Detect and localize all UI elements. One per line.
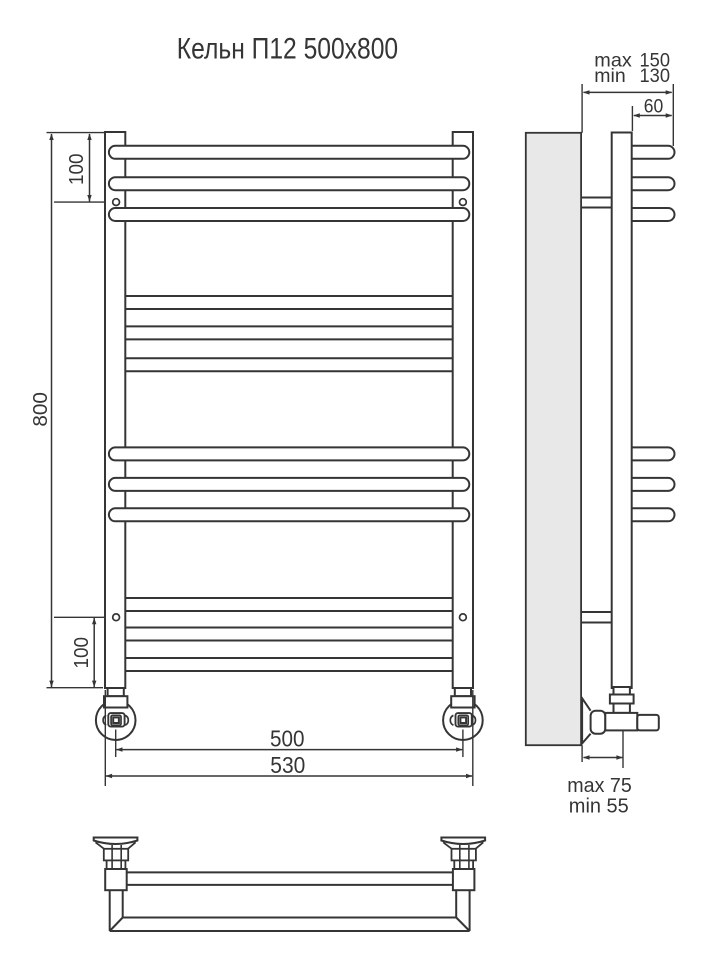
- svg-text:Кельн П12 500х800: Кельн П12 500х800: [177, 33, 398, 66]
- svg-text:100: 100: [65, 154, 88, 186]
- svg-text:min: min: [594, 65, 625, 87]
- svg-text:500: 500: [270, 725, 305, 751]
- svg-text:100: 100: [70, 637, 93, 669]
- svg-text:130: 130: [640, 65, 671, 87]
- svg-text:max 75: max 75: [567, 775, 632, 797]
- svg-text:60: 60: [644, 96, 664, 118]
- svg-text:800: 800: [29, 392, 52, 427]
- svg-text:min 55: min 55: [569, 795, 629, 817]
- svg-text:530: 530: [270, 752, 305, 778]
